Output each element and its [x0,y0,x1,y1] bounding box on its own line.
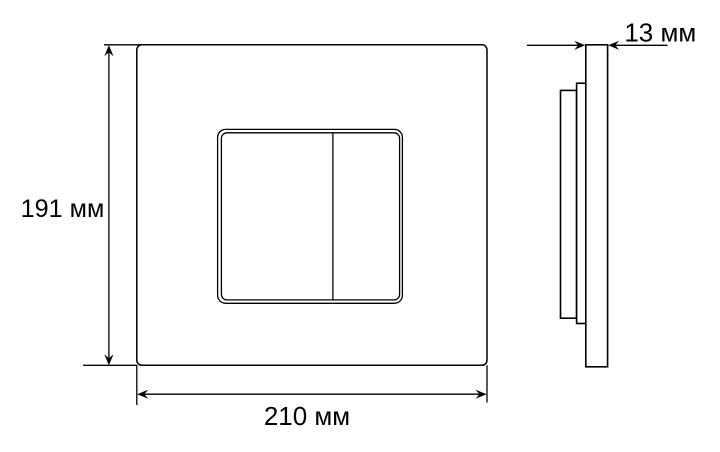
svg-text:210 мм: 210 мм [264,401,350,431]
svg-text:191 мм: 191 мм [21,195,105,223]
svg-text:13 мм: 13 мм [624,17,696,47]
